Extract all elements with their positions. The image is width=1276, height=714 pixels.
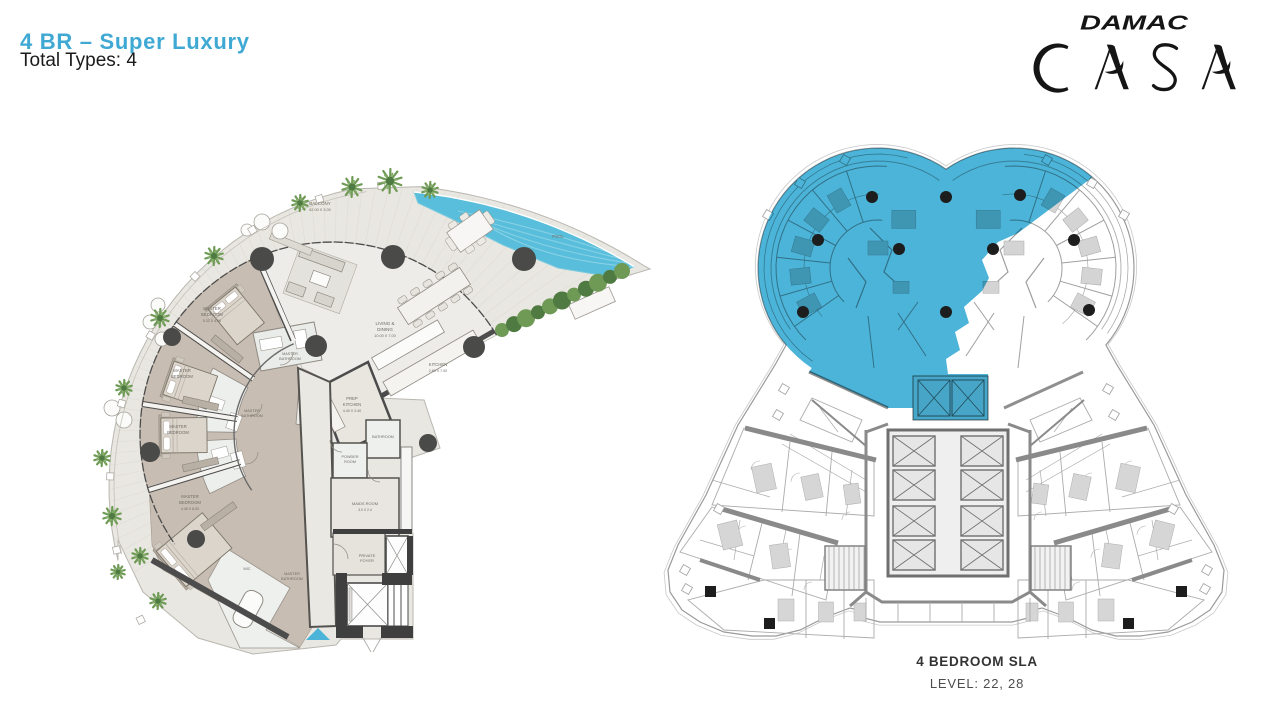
svg-text:BATHROOM: BATHROOM [281,577,303,581]
svg-text:DINING: DINING [377,327,393,332]
svg-text:BATHROOM: BATHROOM [279,357,301,361]
svg-text:3.0 X 2.4: 3.0 X 2.4 [358,508,372,512]
svg-text:POWDER: POWDER [341,455,358,459]
svg-text:LIVING &: LIVING & [375,321,394,326]
svg-text:WIC: WIC [243,567,251,571]
svg-text:10.00 X 7.00: 10.00 X 7.00 [374,334,396,338]
svg-text:BALCONY: BALCONY [309,201,331,206]
svg-text:MASTER: MASTER [282,352,298,356]
svg-text:MASTER: MASTER [181,494,198,499]
svg-text:2.60 X 7.00: 2.60 X 7.00 [429,369,447,373]
svg-text:62.00 X 3.00: 62.00 X 3.00 [309,208,331,212]
svg-text:BATHROOM: BATHROOM [241,414,263,418]
svg-text:KITCHEN: KITCHEN [429,362,447,367]
svg-text:DAMAC: DAMAC [1080,13,1189,35]
svg-text:BEDROOM: BEDROOM [179,500,201,505]
svg-text:5.32 X 4.56: 5.32 X 4.56 [203,319,221,323]
svg-text:ROOM: ROOM [344,460,356,464]
svg-text:MASTER: MASTER [169,424,186,429]
svg-text:BEDROOM: BEDROOM [201,312,223,317]
svg-text:MASTER: MASTER [284,572,300,576]
svg-text:BEDROOM: BEDROOM [171,374,193,379]
svg-text:BATHROOM: BATHROOM [372,435,394,439]
svg-text:4.45 X 8.00: 4.45 X 8.00 [181,507,199,511]
svg-text:4.40 X 3.40: 4.40 X 3.40 [343,409,361,413]
svg-text:MASTER: MASTER [173,368,190,373]
svg-text:MASTER: MASTER [244,409,260,413]
svg-text:BEDROOM: BEDROOM [167,430,189,435]
svg-text:KITCHEN: KITCHEN [343,402,361,407]
svg-text:POOL: POOL [552,234,564,239]
svg-text:FOYER: FOYER [360,558,374,563]
svg-text:MAIDS ROOM: MAIDS ROOM [352,501,378,506]
svg-text:MASTER: MASTER [203,306,220,311]
svg-text:PREP: PREP [346,396,358,401]
